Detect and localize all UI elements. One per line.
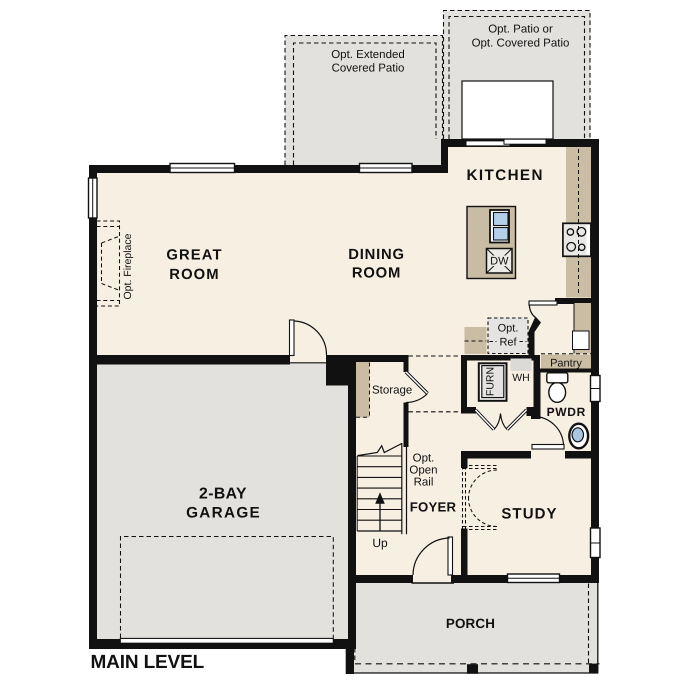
svg-text:Opt. Patio or: Opt. Patio or [488, 24, 553, 36]
svg-text:KITCHEN: KITCHEN [467, 167, 544, 184]
svg-text:Rail: Rail [414, 477, 434, 489]
svg-text:ROOM: ROOM [352, 266, 401, 282]
svg-text:PORCH: PORCH [446, 616, 495, 631]
svg-text:GREAT: GREAT [166, 247, 222, 263]
svg-text:Pantry: Pantry [550, 357, 582, 369]
svg-text:DINING: DINING [348, 247, 405, 263]
svg-text:WH: WH [512, 372, 530, 384]
svg-text:Open: Open [409, 465, 437, 477]
svg-text:Storage: Storage [372, 385, 412, 397]
svg-text:Covered Patio: Covered Patio [332, 63, 405, 75]
svg-text:Opt. Extended: Opt. Extended [331, 49, 405, 61]
svg-text:2-BAY: 2-BAY [199, 485, 247, 502]
svg-text:GARAGE: GARAGE [186, 504, 261, 521]
svg-text:FOYER: FOYER [410, 500, 457, 515]
svg-text:DW: DW [490, 256, 509, 268]
svg-text:Up: Up [372, 536, 388, 550]
svg-text:Opt.: Opt. [413, 453, 435, 465]
svg-text:Opt.: Opt. [498, 323, 519, 335]
svg-text:STUDY: STUDY [501, 506, 557, 523]
svg-text:FURN: FURN [485, 367, 497, 396]
svg-text:Ref: Ref [499, 337, 517, 349]
svg-text:PWDR: PWDR [547, 405, 586, 419]
svg-text:Opt. Covered Patio: Opt. Covered Patio [472, 38, 570, 50]
svg-text:ROOM: ROOM [169, 267, 219, 283]
svg-text:Opt. Fireplace: Opt. Fireplace [122, 233, 134, 299]
svg-text:MAIN LEVEL: MAIN LEVEL [91, 652, 205, 673]
